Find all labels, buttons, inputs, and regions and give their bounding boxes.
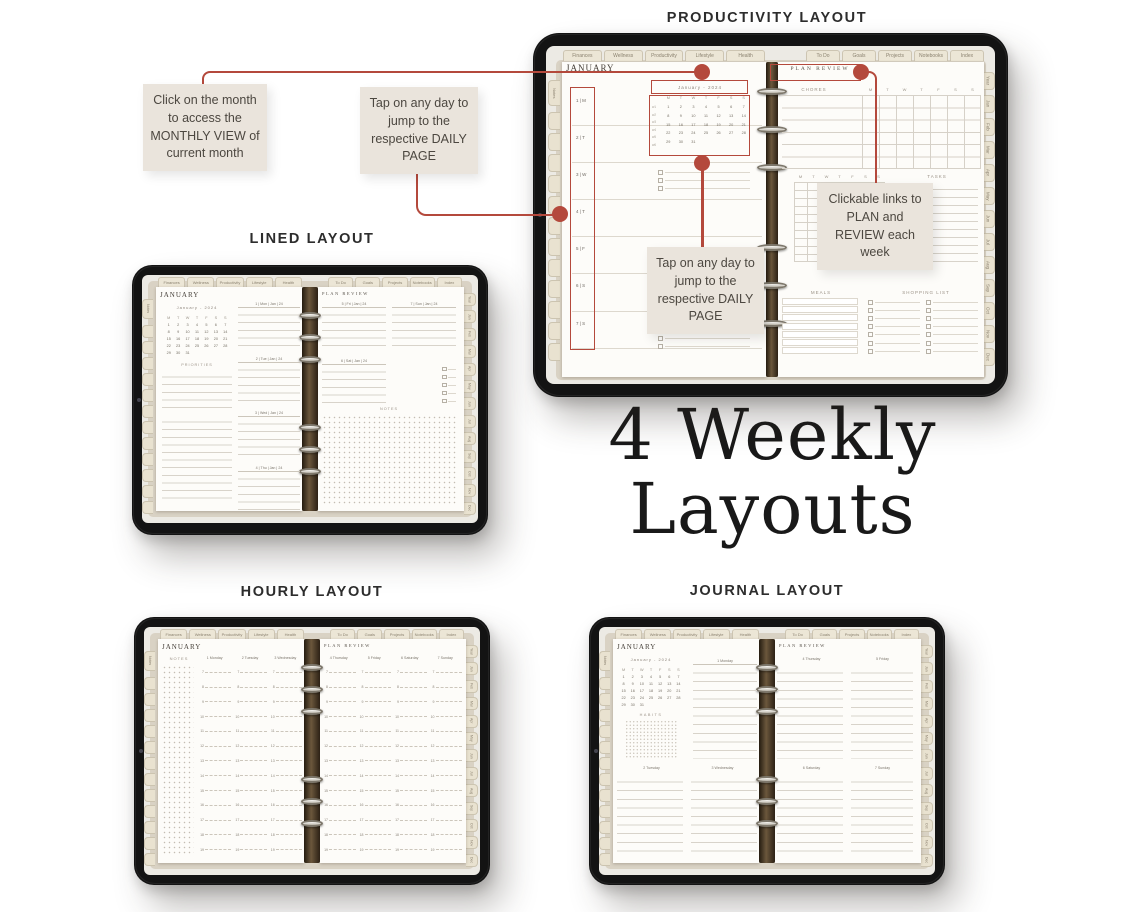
day-header[interactable]: 2 Tuesday xyxy=(617,766,686,770)
habits-dot-rows[interactable] xyxy=(625,720,677,758)
journal-tablet: FinancesWellnessProductivityLifestyleHea… xyxy=(589,617,945,885)
left-side-tab[interactable] xyxy=(144,757,155,770)
day-block-saturday[interactable]: 6 | Sat | Jan | 24 xyxy=(322,357,386,405)
left-side-tab[interactable] xyxy=(599,677,610,690)
top-tab[interactable]: Lifestyle xyxy=(703,629,730,639)
month-side-tab[interactable]: Oct xyxy=(464,467,476,480)
habit-grid[interactable] xyxy=(794,182,885,262)
right-day-headers-bottom: 6 Saturday7 Sunday xyxy=(777,766,917,770)
notes-side-tab[interactable]: Notes xyxy=(599,651,610,671)
top-tabs-right: To DoGoalsProjectsNotebooksIndex xyxy=(330,629,464,639)
mini-calendar-month[interactable]: January - 2024 xyxy=(621,657,681,662)
camera-icon xyxy=(137,398,141,402)
productivity-tablet: FinancesWellnessProductivityLifestyleHea… xyxy=(533,33,1008,397)
calendar-days: 1234567891011121314151617181920212223242… xyxy=(619,675,683,710)
top-tab[interactable]: Health xyxy=(277,629,304,639)
chores-grid[interactable] xyxy=(862,95,981,169)
month-side-tabs: YearJanFebMarAprMayJunJulAugSepOctNovDec xyxy=(921,645,933,867)
left-hour-columns: 78910111213141516171819 7891011121314151… xyxy=(198,665,302,857)
month-side-tab[interactable]: Year xyxy=(466,645,478,658)
hour-column[interactable]: 78910111213141516171819 xyxy=(358,665,392,857)
notes-side-tab[interactable]: Notes xyxy=(142,299,153,319)
month-side-tab[interactable]: Jan xyxy=(464,310,476,323)
month-side-tab[interactable]: Dec xyxy=(921,854,933,867)
hour-column[interactable]: 78910111213141516171819 xyxy=(198,665,231,857)
month-side-tab[interactable]: Sep xyxy=(464,450,476,463)
top-tab[interactable]: Projects xyxy=(384,629,409,639)
top-tab[interactable]: Index xyxy=(439,629,464,639)
left-side-tab[interactable] xyxy=(548,301,560,319)
mini-calendar-month[interactable]: January - 2024 xyxy=(166,305,228,310)
left-side-tab[interactable] xyxy=(144,725,155,738)
journal-layout-title: JOURNAL LAYOUT xyxy=(597,583,937,599)
binder-ring xyxy=(299,424,321,431)
day-header[interactable]: 3 Wednesday xyxy=(269,656,302,660)
left-side-tab[interactable] xyxy=(548,343,560,361)
left-side-tab[interactable] xyxy=(144,709,155,722)
month-side-tab[interactable]: Year xyxy=(464,293,476,306)
plan-review-link[interactable]: PLAN REVIEW xyxy=(322,291,392,296)
notes-dot-grid[interactable] xyxy=(322,415,456,505)
productivity-layout-title: PRODUCTIVITY LAYOUT xyxy=(597,10,937,26)
month-side-tabs: YearJanFebMarAprMayJunJulAugSepOctNovDec xyxy=(464,293,476,515)
day-lines[interactable] xyxy=(777,665,843,759)
week-labels: w1w2w3w4w5w6 xyxy=(652,105,656,150)
left-side-tab[interactable] xyxy=(142,357,153,370)
top-tab[interactable]: To Do xyxy=(328,277,353,287)
plan-review-link[interactable]: PLAN REVIEW xyxy=(778,66,862,72)
priorities-lines[interactable] xyxy=(162,370,232,408)
meals-label: MEALS xyxy=(784,290,858,295)
top-tab[interactable]: Productivity xyxy=(218,629,245,639)
month-side-tab[interactable]: Year xyxy=(921,645,933,658)
day-block[interactable]: 1 | Mon | Jan | 24 xyxy=(238,300,300,346)
left-side-tab[interactable] xyxy=(548,322,560,340)
left-side-tab[interactable] xyxy=(548,133,560,151)
month-side-tab[interactable]: Jul xyxy=(466,767,478,780)
month-side-tab[interactable]: Mar xyxy=(921,697,933,710)
top-tab[interactable]: Index xyxy=(437,277,462,287)
top-tab[interactable]: Lifestyle xyxy=(246,277,273,287)
binder-spine xyxy=(766,62,778,377)
right-hour-columns: 78910111213141516171819 7891011121314151… xyxy=(322,665,462,857)
month-side-tab[interactable]: Oct xyxy=(921,819,933,832)
month-title[interactable]: JANUARY xyxy=(566,63,615,73)
month-side-tab[interactable]: May xyxy=(921,732,933,745)
binder-ring xyxy=(301,708,323,715)
top-tabs-right: To DoGoalsProjectsNotebooksIndex xyxy=(785,629,919,639)
left-side-tab[interactable] xyxy=(142,421,153,434)
top-tab[interactable]: Wellness xyxy=(604,50,643,61)
left-side-tab[interactable] xyxy=(599,821,610,834)
top-tabs-left: FinancesWellnessProductivityLifestyleHea… xyxy=(615,629,759,639)
top-tab[interactable]: Wellness xyxy=(187,277,214,287)
right-day-blocks-top: 5 | Fri | Jan | 24 7 | Sun | Jan | 24 xyxy=(322,300,456,352)
day-header[interactable]: 5 Friday xyxy=(848,657,917,661)
top-tabs-left: FinancesWellnessProductivityLifestyleHea… xyxy=(160,629,304,639)
top-tab[interactable]: Index xyxy=(950,50,984,61)
top-tab[interactable]: Wellness xyxy=(189,629,216,639)
month-side-tab[interactable]: Apr xyxy=(464,363,476,376)
left-side-tab[interactable] xyxy=(599,789,610,802)
left-side-tab[interactable] xyxy=(142,453,153,466)
month-side-tab[interactable]: Apr xyxy=(921,715,933,728)
day-lines[interactable] xyxy=(851,665,913,759)
checkbox-column[interactable] xyxy=(442,365,456,405)
journal-screen: FinancesWellnessProductivityLifestyleHea… xyxy=(599,627,935,875)
left-side-tab[interactable] xyxy=(599,757,610,770)
top-tab[interactable]: Health xyxy=(726,50,765,61)
month-side-tab[interactable]: Jun xyxy=(921,749,933,762)
top-tab[interactable]: Finances xyxy=(158,277,185,287)
lined-tablet: FinancesWellnessProductivityLifestyleHea… xyxy=(132,265,488,535)
headline: 4 Weekly Layouts xyxy=(550,398,995,546)
top-tab[interactable]: Notebooks xyxy=(412,629,437,639)
top-tab[interactable]: Projects xyxy=(839,629,864,639)
mini-calendar[interactable]: w1w2w3w4w5w6 MTWTFSS 1234567891011121314… xyxy=(652,96,750,150)
hourly-screen: FinancesWellnessProductivityLifestyleHea… xyxy=(144,627,480,875)
right-day-headers: 4 Thursday5 Friday6 Saturday7 Sunday xyxy=(322,656,462,660)
month-side-tab[interactable]: Nov xyxy=(464,484,476,497)
left-side-tab[interactable] xyxy=(599,805,610,818)
top-tabs-right: To DoGoalsProjectsNotebooksIndex xyxy=(806,50,984,61)
left-side-tab[interactable] xyxy=(142,405,153,418)
top-tab[interactable]: Index xyxy=(894,629,919,639)
shopping-list-col1[interactable] xyxy=(868,298,920,355)
left-side-tab[interactable] xyxy=(599,853,610,866)
month-side-tab[interactable]: Feb xyxy=(921,680,933,693)
left-side-tab[interactable] xyxy=(142,485,153,498)
binder-ring xyxy=(299,468,321,475)
left-side-tabs xyxy=(548,112,560,361)
top-tab[interactable]: Productivity xyxy=(216,277,243,287)
hourly-tablet: FinancesWellnessProductivityLifestyleHea… xyxy=(134,617,490,885)
left-side-tab[interactable] xyxy=(599,773,610,786)
month-side-tab[interactable]: Jan xyxy=(466,662,478,675)
left-side-tab[interactable] xyxy=(548,280,560,298)
day-lines[interactable] xyxy=(851,774,913,856)
top-tab[interactable]: Lifestyle xyxy=(248,629,275,639)
left-side-tab[interactable] xyxy=(144,821,155,834)
right-day-headers-top: 4 Thursday5 Friday xyxy=(777,657,917,661)
month-side-tab[interactable]: Jul xyxy=(921,767,933,780)
day-header[interactable]: 7 Sunday xyxy=(429,656,463,660)
camera-icon xyxy=(538,213,542,217)
notes-label: NOTES xyxy=(164,656,194,661)
month-side-tab[interactable]: Feb xyxy=(466,680,478,693)
left-side-tab[interactable] xyxy=(144,741,155,754)
hour-column[interactable]: 78910111213141516171819 xyxy=(233,665,266,857)
tasks-label: TASKS xyxy=(898,174,976,179)
top-tab[interactable]: Goals xyxy=(812,629,837,639)
month-side-tab[interactable]: Mar xyxy=(464,345,476,358)
left-side-tab[interactable] xyxy=(548,196,560,214)
day-lines[interactable] xyxy=(617,774,683,856)
top-tab[interactable]: Notebooks xyxy=(914,50,948,61)
day-block[interactable]: 5 | Fri | Jan | 24 xyxy=(322,300,386,352)
tasks-lines[interactable] xyxy=(898,182,978,262)
top-tab[interactable]: To Do xyxy=(785,629,810,639)
month-side-tab[interactable]: Jul xyxy=(464,415,476,428)
binder-ring xyxy=(301,664,323,671)
left-side-tabs xyxy=(599,677,610,866)
notes-dot-grid[interactable] xyxy=(162,665,194,855)
day-header[interactable]: 4 Thursday xyxy=(777,657,846,661)
day-row[interactable]: 6 | S xyxy=(572,274,762,311)
left-side-tab[interactable] xyxy=(599,725,610,738)
camera-icon xyxy=(139,749,143,753)
day-header[interactable]: 4 Thursday xyxy=(322,656,356,660)
top-tabs-left: FinancesWellnessProductivityLifestyleHea… xyxy=(563,50,765,61)
month-side-tab[interactable]: Jan xyxy=(921,662,933,675)
month-side-tabs: YearJanFebMarAprMayJunJulAugSepOctNovDec xyxy=(466,645,478,867)
left-side-tabs xyxy=(144,677,155,866)
left-side-tab[interactable] xyxy=(548,238,560,256)
month-side-tab[interactable]: Aug xyxy=(464,432,476,445)
binder-ring xyxy=(301,820,323,827)
weekday-header: MTWTFSS xyxy=(662,96,750,100)
top-tab[interactable]: Finances xyxy=(615,629,642,639)
month-side-tab[interactable]: Jun xyxy=(464,397,476,410)
habits-label: HABITS xyxy=(625,713,677,717)
left-side-tab[interactable] xyxy=(599,837,610,850)
month-side-tab[interactable]: Feb xyxy=(464,328,476,341)
mini-calendar[interactable]: MTWTFSS 12345678910111213141516171819202… xyxy=(164,316,230,358)
binder-spine xyxy=(304,639,320,863)
shopping-list-label: SHOPPING LIST xyxy=(876,290,976,295)
left-side-tab[interactable] xyxy=(599,741,610,754)
headline-line2: Layouts xyxy=(550,472,995,546)
top-tab[interactable]: To Do xyxy=(330,629,355,639)
day-header[interactable]: 6 Saturday xyxy=(393,656,427,660)
month-side-tab[interactable]: Oct xyxy=(466,819,478,832)
left-side-tab[interactable] xyxy=(142,389,153,402)
binder-ring xyxy=(301,776,323,783)
binder-ring xyxy=(756,798,778,805)
chores-weekdays: MTWTFSS xyxy=(862,87,981,92)
binder-ring xyxy=(299,356,321,363)
habit-weekdays: MTWTFSS xyxy=(794,174,885,179)
weekday-header: MTWTFSS xyxy=(164,316,230,320)
day-header[interactable]: 1 Monday xyxy=(693,657,757,665)
chores-grid-labels[interactable] xyxy=(782,95,862,169)
day-header[interactable]: 7 Sunday xyxy=(848,766,917,770)
left-side-tab[interactable] xyxy=(144,837,155,850)
left-side-tab[interactable] xyxy=(548,259,560,277)
binder-ring xyxy=(301,686,323,693)
left-side-tab[interactable] xyxy=(142,437,153,450)
left-side-tab[interactable] xyxy=(548,154,560,172)
plan-review-link[interactable]: PLAN REVIEW xyxy=(324,643,404,648)
extra-lines[interactable] xyxy=(162,415,232,505)
top-tab[interactable]: Lifestyle xyxy=(685,50,724,61)
left-side-tab[interactable] xyxy=(144,677,155,690)
todo-list xyxy=(658,168,750,192)
weekday-header: MTWTFSS xyxy=(619,668,683,672)
lined-screen: FinancesWellnessProductivityLifestyleHea… xyxy=(142,275,478,523)
left-side-tab[interactable] xyxy=(144,789,155,802)
stage: PRODUCTIVITY LAYOUT LINED LAYOUT HOURLY … xyxy=(0,0,1140,912)
notes-side-tab[interactable]: Notes xyxy=(144,651,155,671)
month-side-tab[interactable]: Jun xyxy=(466,749,478,762)
top-tab[interactable]: Productivity xyxy=(645,50,684,61)
binder-ring xyxy=(301,798,323,805)
hour-column[interactable]: 78910111213141516171819 xyxy=(429,665,463,857)
day-block[interactable]: 2 | Tue | Jan | 24 xyxy=(238,355,300,401)
day-lines[interactable] xyxy=(691,774,757,856)
month-side-tab[interactable]: Sep xyxy=(921,802,933,815)
left-side-tab[interactable] xyxy=(142,341,153,354)
left-side-tab[interactable] xyxy=(548,217,560,235)
month-side-tab[interactable]: Sep xyxy=(466,802,478,815)
binder-spine xyxy=(759,639,775,863)
binder-ring xyxy=(299,334,321,341)
callout-daily-page-top: Tap on any day to jump to the respective… xyxy=(360,87,478,174)
top-tab[interactable]: Health xyxy=(732,629,759,639)
binder-ring xyxy=(299,446,321,453)
left-side-tab[interactable] xyxy=(144,853,155,866)
calendar-days: 1234567891011121314151617181920212223242… xyxy=(662,105,750,149)
mini-calendar[interactable]: MTWTFSS 12345678910111213141516171819202… xyxy=(619,668,683,710)
top-tab[interactable]: Finances xyxy=(563,50,602,61)
month-side-tab[interactable]: Nov xyxy=(466,836,478,849)
top-tabs-left: FinancesWellnessProductivityLifestyleHea… xyxy=(158,277,302,287)
day-block[interactable]: 3 | Wed | Jan | 24 xyxy=(238,409,300,455)
priorities-label: PRIORITIES xyxy=(166,363,228,367)
top-tab[interactable]: Goals xyxy=(357,629,382,639)
day-block[interactable]: 4 | Thu | Jan | 24 xyxy=(238,464,300,510)
left-side-tab[interactable] xyxy=(548,112,560,130)
month-side-tab[interactable]: May xyxy=(464,380,476,393)
headline-line1: 4 Weekly xyxy=(550,398,995,472)
binder-ring xyxy=(299,312,321,319)
month-side-tab[interactable]: Mar xyxy=(466,697,478,710)
left-side-tab[interactable] xyxy=(548,175,560,193)
left-side-tab[interactable] xyxy=(599,709,610,722)
todo-list xyxy=(658,326,750,350)
top-tab[interactable]: Projects xyxy=(382,277,407,287)
left-side-tab[interactable] xyxy=(144,693,155,706)
productivity-screen: FinancesWellnessProductivityLifestyleHea… xyxy=(546,46,995,384)
top-tabs-right: To DoGoalsProjectsNotebooksIndex xyxy=(328,277,462,287)
notes-label: NOTES xyxy=(356,407,422,411)
hour-column[interactable]: 78910111213141516171819 xyxy=(393,665,427,857)
day-header[interactable]: 2 Tuesday xyxy=(233,656,266,660)
mini-calendar-month[interactable]: January - 2024 xyxy=(654,82,746,94)
left-day-headers-bottom: 2 Tuesday3 Wednesday xyxy=(617,766,757,770)
binder-ring xyxy=(756,708,778,715)
day-lines[interactable] xyxy=(777,774,843,856)
left-side-tab[interactable] xyxy=(142,373,153,386)
notes-side-tab[interactable]: Notes xyxy=(548,80,560,106)
plan-review-link[interactable]: PLAN REVIEW xyxy=(779,643,859,648)
month-side-tab[interactable]: Nov xyxy=(921,836,933,849)
top-tab[interactable]: Productivity xyxy=(673,629,700,639)
left-side-tab[interactable] xyxy=(142,469,153,482)
month-title[interactable]: JANUARY xyxy=(160,291,199,299)
meals-boxes[interactable] xyxy=(782,298,858,355)
left-side-tab[interactable] xyxy=(599,693,610,706)
left-day-headers: 1 Monday2 Tuesday3 Wednesday xyxy=(198,656,302,660)
top-tab[interactable]: Notebooks xyxy=(867,629,892,639)
month-side-tab[interactable]: Aug xyxy=(921,784,933,797)
todo-list xyxy=(658,252,750,276)
top-tab[interactable]: Finances xyxy=(160,629,187,639)
left-side-tabs xyxy=(142,325,153,514)
hourly-layout-title: HOURLY LAYOUT xyxy=(142,584,482,600)
day-header[interactable]: 1 Monday xyxy=(198,656,231,660)
top-tab[interactable]: To Do xyxy=(806,50,840,61)
month-side-tab[interactable]: Dec xyxy=(466,854,478,867)
left-side-tab[interactable] xyxy=(142,325,153,338)
month-title[interactable]: JANUARY xyxy=(162,643,201,651)
day-block[interactable]: 7 | Sun | Jan | 24 xyxy=(392,300,456,352)
hour-column[interactable]: 78910111213141516171819 xyxy=(322,665,356,857)
hour-column[interactable]: 78910111213141516171819 xyxy=(269,665,302,857)
top-tab[interactable]: Wellness xyxy=(644,629,671,639)
left-side-tab[interactable] xyxy=(144,805,155,818)
left-day-blocks: 1 | Mon | Jan | 24 2 | Tue | Jan | 24 3 … xyxy=(238,300,300,518)
month-side-tab[interactable]: Apr xyxy=(466,715,478,728)
day-header[interactable]: 5 Friday xyxy=(358,656,392,660)
left-side-tab[interactable] xyxy=(142,501,153,514)
top-tab[interactable]: Health xyxy=(275,277,302,287)
callout-monthly-view: Click on the month to access the MONTHLY… xyxy=(143,84,267,171)
top-tab[interactable]: Projects xyxy=(878,50,912,61)
binder-ring xyxy=(756,664,778,671)
top-tab[interactable]: Goals xyxy=(355,277,380,287)
day-lines[interactable] xyxy=(693,665,757,759)
calendar-days: 1234567891011121314151617181920212223242… xyxy=(164,323,230,358)
month-title[interactable]: JANUARY xyxy=(617,643,656,651)
day-header[interactable]: 6 Saturday xyxy=(777,766,846,770)
binder-ring xyxy=(756,686,778,693)
chores-label: CHORES xyxy=(786,87,842,92)
lined-layout-title: LINED LAYOUT xyxy=(142,231,482,247)
camera-icon xyxy=(594,749,598,753)
day-header[interactable]: 3 Wednesday xyxy=(688,766,757,770)
month-side-tab[interactable]: May xyxy=(466,732,478,745)
top-tab[interactable]: Notebooks xyxy=(410,277,435,287)
binder-ring xyxy=(756,776,778,783)
month-side-tab[interactable]: Dec xyxy=(464,502,476,515)
shopping-list-col2[interactable] xyxy=(926,298,978,355)
month-side-tab[interactable]: Aug xyxy=(466,784,478,797)
binder-spine xyxy=(302,287,318,511)
binder-ring xyxy=(756,820,778,827)
top-tab[interactable]: Goals xyxy=(842,50,876,61)
left-side-tab[interactable] xyxy=(144,773,155,786)
day-row[interactable]: 4 | T xyxy=(572,200,762,237)
